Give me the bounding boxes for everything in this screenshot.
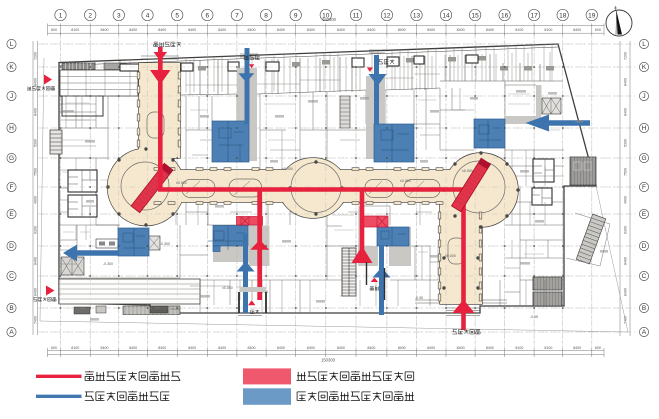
svg-text:150300: 150300 [321,358,336,363]
svg-text:±0.000: ±0.000 [176,181,187,185]
svg-text:8400: 8400 [129,28,137,32]
svg-text:G: G [9,155,14,162]
svg-text:9: 9 [294,12,298,19]
svg-text:G: G [641,155,646,162]
svg-text:11: 11 [353,12,360,19]
svg-text:B: B [642,305,646,312]
svg-text:8400: 8400 [367,346,375,350]
svg-text:-0.300: -0.300 [160,242,170,246]
svg-text:15: 15 [471,12,479,19]
svg-text:L: L [642,41,646,48]
svg-text:8400: 8400 [277,346,285,350]
svg-text:8400: 8400 [33,108,37,116]
svg-text:4000: 4000 [33,196,37,204]
svg-text:8100: 8100 [71,346,79,350]
svg-text:12: 12 [383,12,391,19]
svg-text:600: 600 [595,28,601,32]
svg-text:8400: 8400 [457,28,465,32]
svg-text:8400: 8400 [367,28,375,32]
svg-text:D: D [9,243,14,250]
svg-text:5300: 5300 [624,139,628,147]
svg-text:8400: 8400 [307,28,315,32]
svg-text:8400: 8400 [101,346,109,350]
svg-text:8400: 8400 [573,346,581,350]
svg-text:8100: 8100 [544,346,552,350]
svg-text:17: 17 [530,12,538,19]
svg-text:K: K [642,64,647,71]
svg-text:A: A [9,329,14,336]
svg-text:8100: 8100 [71,28,79,32]
svg-text:E: E [9,211,14,218]
svg-text:-0.05: -0.05 [530,315,538,319]
svg-text:2: 2 [88,12,92,19]
svg-text:7500: 7500 [33,168,37,176]
svg-text:8400: 8400 [398,28,406,32]
svg-text:8400: 8400 [337,346,345,350]
svg-text:D: D [642,243,647,250]
svg-text:±0.000: ±0.000 [222,286,233,290]
svg-text:8400: 8400 [624,78,628,86]
svg-text:8400: 8400 [188,28,196,32]
svg-text:8400: 8400 [277,28,285,32]
svg-text:150300: 150300 [322,17,337,22]
svg-text:600: 600 [595,346,601,350]
svg-text:F: F [642,184,646,191]
svg-text:8400: 8400 [248,346,256,350]
svg-text:19: 19 [588,12,596,19]
svg-text:6: 6 [205,12,209,19]
svg-text:C: C [642,273,647,280]
svg-text:8400: 8400 [158,28,166,32]
svg-text:±0.000: ±0.000 [400,179,411,183]
svg-text:8400: 8400 [427,28,435,32]
svg-text:8400: 8400 [158,346,166,350]
svg-text:5: 5 [175,12,179,19]
svg-text:7500: 7500 [624,168,628,176]
svg-text:8400: 8400 [218,28,226,32]
svg-text:H: H [642,125,647,132]
svg-text:8400: 8400 [457,346,465,350]
svg-text:B: B [9,305,13,312]
svg-text:8400: 8400 [307,346,315,350]
svg-text:J: J [10,93,13,100]
svg-text:-0.300: -0.300 [103,262,113,266]
svg-text:8400: 8400 [33,257,37,265]
svg-text:8400: 8400 [33,78,37,86]
svg-text:-0.05: -0.05 [415,296,423,300]
svg-text:8400: 8400 [101,28,109,32]
svg-text:4: 4 [146,12,150,19]
svg-text:8400: 8400 [398,346,406,350]
svg-text:4000: 4000 [624,196,628,204]
svg-text:8400: 8400 [624,288,628,296]
svg-text:8100: 8100 [515,346,523,350]
svg-text:8400: 8400 [624,108,628,116]
svg-text:8400: 8400 [129,346,137,350]
svg-text:J: J [642,93,645,100]
svg-text:C: C [9,273,14,280]
svg-text:8: 8 [264,12,268,19]
svg-text:7: 7 [235,12,239,19]
svg-text:6300: 6300 [624,226,628,234]
svg-text:±0.000: ±0.000 [445,254,456,258]
svg-text:A: A [642,329,647,336]
svg-text:±0.000: ±0.000 [282,167,293,171]
svg-text:8400: 8400 [427,346,435,350]
svg-text:8100: 8100 [515,28,523,32]
svg-text:600: 600 [51,28,57,32]
svg-text:13: 13 [413,12,421,19]
svg-text:8400: 8400 [337,28,345,32]
svg-text:L: L [10,41,14,48]
svg-text:8400: 8400 [486,28,494,32]
svg-text:7400: 7400 [33,316,37,324]
svg-text:8400: 8400 [624,257,628,265]
svg-text:6300: 6300 [33,226,37,234]
svg-text:8400: 8400 [248,28,256,32]
svg-text:7200: 7200 [33,52,37,60]
svg-text:5300: 5300 [33,139,37,147]
svg-text:3: 3 [117,12,121,19]
svg-text:18: 18 [559,12,567,19]
svg-text:±0.000: ±0.000 [462,169,473,173]
svg-text:K: K [9,64,14,71]
svg-text:1: 1 [59,12,63,19]
svg-text:14: 14 [442,12,450,19]
svg-text:E: E [642,211,647,218]
svg-text:F: F [10,184,14,191]
svg-text:8400: 8400 [188,346,196,350]
svg-text:8400: 8400 [218,346,226,350]
svg-text:8100: 8100 [544,28,552,32]
svg-text:16: 16 [501,12,509,19]
svg-text:8400: 8400 [33,288,37,296]
svg-text:H: H [9,125,14,132]
svg-text:8400: 8400 [486,346,494,350]
svg-text:600: 600 [51,346,57,350]
svg-text:7200: 7200 [624,52,628,60]
svg-text:8400: 8400 [573,28,581,32]
